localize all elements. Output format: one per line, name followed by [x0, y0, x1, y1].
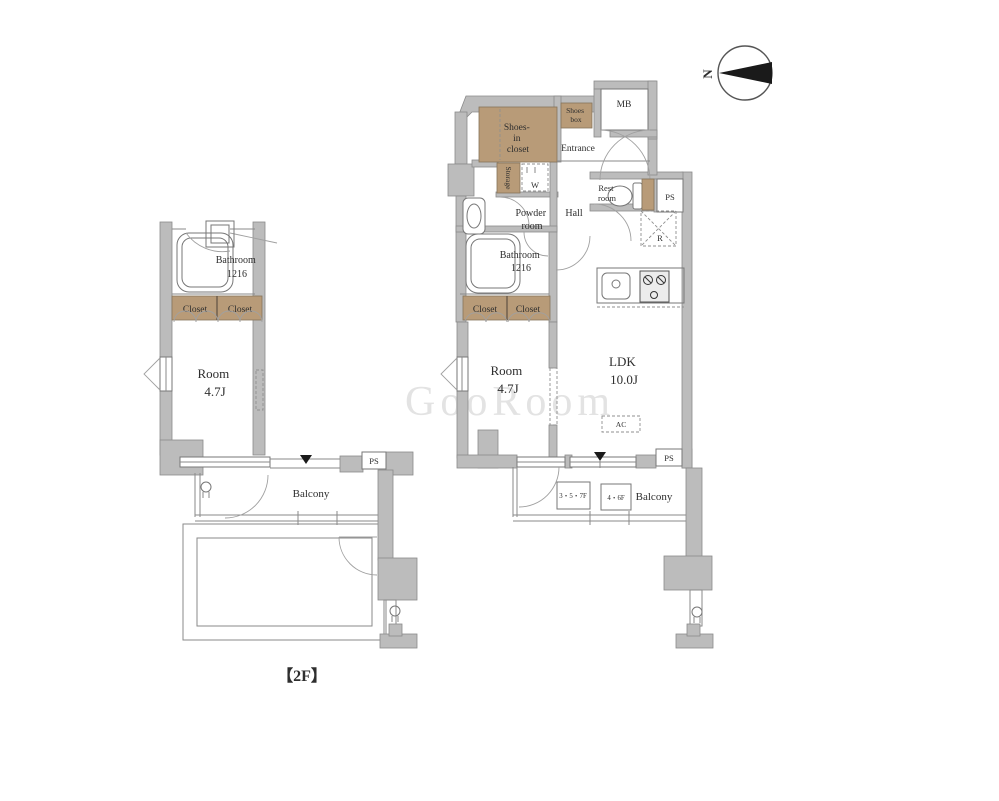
left-closet-b-label: Closet	[228, 305, 253, 315]
right-balcony: 3・5・7F 4・6F Balcony	[513, 467, 686, 525]
left-closet-a-label: Closet	[183, 305, 208, 315]
toilet-tank	[633, 183, 642, 209]
floors-b-label: 4・6F	[607, 495, 625, 502]
washer-label: W	[531, 180, 539, 190]
stove	[640, 271, 669, 302]
fridge-label: R	[657, 233, 663, 243]
left-drain	[201, 482, 211, 492]
right-unit: Shoes- in closet Shoes box MB Entrance S…	[441, 81, 713, 648]
storage-label: Storage	[504, 167, 513, 191]
ps-top-label: PS	[665, 192, 675, 202]
entrance-label: Entrance	[561, 144, 595, 154]
floor-plan-page: GooRoom Bathroom 1216 Closet Closet	[0, 0, 999, 801]
right-balcony-label: Balcony	[636, 491, 673, 503]
ac-label: AC	[616, 420, 626, 429]
floors-a-label: 3・5・7F	[559, 493, 587, 500]
left-unit: Bathroom 1216 Closet Closet Room 4.7J P	[144, 221, 417, 648]
kitchen	[597, 268, 684, 307]
right-ps-label: PS	[664, 453, 674, 463]
compass-north-label: N	[700, 69, 715, 79]
mb-label: MB	[617, 100, 632, 110]
kitchen-sink	[602, 273, 630, 299]
left-balcony-label: Balcony	[293, 488, 330, 500]
toilet-cabinet	[642, 179, 654, 210]
left-balcony: Balcony	[195, 473, 388, 525]
ldk-label: LDK 10.0J	[609, 354, 639, 387]
floor-label: 【2F】	[277, 667, 327, 685]
restroom-label: Rest room	[598, 183, 616, 203]
floor-plan: GooRoom Bathroom 1216 Closet Closet	[0, 0, 999, 801]
compass: N	[700, 46, 772, 100]
left-room-label: Room 4.7J	[197, 366, 232, 399]
hall-label: Hall	[565, 208, 582, 219]
vanity	[463, 198, 485, 234]
left-ps-label: PS	[369, 456, 379, 466]
